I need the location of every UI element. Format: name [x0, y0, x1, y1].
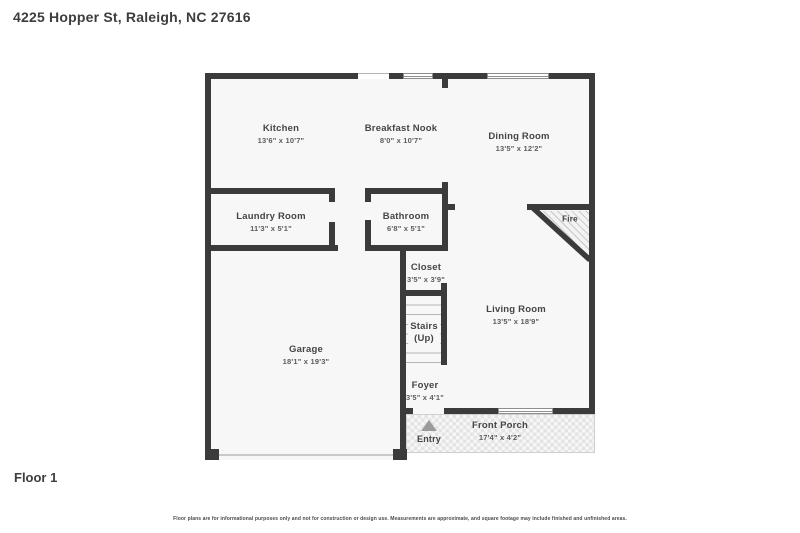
wall-laundry-right-upper [329, 194, 335, 202]
wall-bottom-3 [553, 408, 595, 414]
room-name: Foyer [406, 380, 444, 392]
room-label-laundry-room: Laundry Room 11'3" x 5'1" [236, 211, 305, 233]
wall-top-1 [205, 73, 358, 79]
wall-bottom-2 [444, 408, 498, 414]
room-label-garage: Garage 18'1" x 19'3" [283, 344, 330, 366]
room-name: Kitchen [258, 123, 305, 135]
wall-bathroom-left-upper [365, 194, 371, 202]
room-label-bathroom: Bathroom 6'8" x 5'1" [383, 211, 429, 233]
wall-breakfast-dining-stub [442, 79, 448, 88]
wall-bathroom-right [442, 182, 448, 251]
garage-door-line [219, 454, 393, 456]
room-name: Stairs [408, 321, 440, 333]
room-label-foyer: Foyer 3'5" x 4'1" [406, 380, 444, 402]
room-label-stairs: Stairs (Up) [408, 321, 440, 345]
entry-label: Entry [417, 434, 441, 444]
fireplace [527, 202, 595, 264]
room-name: Dining Room [488, 131, 549, 143]
room-dims: 3'5" x 4'1" [406, 393, 444, 402]
room-dims: 8'0" x 10'7" [365, 136, 438, 145]
wall-laundry-top [211, 188, 335, 194]
room-name: Laundry Room [236, 211, 305, 223]
room-dims: 17'4" x 4'2" [472, 433, 528, 442]
room-label-living-room: Living Room 13'5" x 18'9" [486, 304, 546, 326]
garage-corner-left [205, 449, 219, 460]
wall-garage-right [400, 251, 406, 460]
room-label-kitchen: Kitchen 13'6" x 10'7" [258, 123, 305, 145]
room-dims: 3'5" x 3'9" [407, 275, 445, 284]
page-title: 4225 Hopper St, Raleigh, NC 27616 [13, 9, 251, 25]
room-dims: 11'3" x 5'1" [236, 224, 305, 233]
room-dims: 13'6" x 10'7" [258, 136, 305, 145]
window-top-2 [487, 73, 549, 79]
wall-bathroom-top [365, 188, 448, 194]
stairs-direction: (Up) [408, 333, 440, 345]
window-bottom [498, 408, 553, 414]
room-dims: 13'5" x 12'2" [488, 144, 549, 153]
entry-arrow-icon [421, 420, 437, 431]
room-label-closet: Closet 3'5" x 3'9" [407, 262, 445, 284]
room-label-dining-room: Dining Room 13'5" x 12'2" [488, 131, 549, 153]
room-name: Front Porch [472, 420, 528, 432]
room-name: Garage [283, 344, 330, 356]
patio-door-opening [358, 73, 389, 79]
room-name: Living Room [486, 304, 546, 316]
wall-mid-right [368, 245, 448, 251]
wall-mid-left [205, 245, 338, 251]
room-name: Closet [407, 262, 445, 274]
fireplace-label: Fire [562, 215, 578, 224]
room-name: Bathroom [383, 211, 429, 223]
floor-number-label: Floor 1 [14, 470, 57, 485]
room-dims: 6'8" x 5'1" [383, 224, 429, 233]
room-label-breakfast-nook: Breakfast Nook 8'0" x 10'7" [365, 123, 438, 145]
wall-top-2 [389, 73, 403, 79]
room-dims: 13'5" x 18'9" [486, 317, 546, 326]
wall-bathroom-right-stub [448, 204, 455, 210]
room-dims: 18'1" x 19'3" [283, 357, 330, 366]
window-top-1 [403, 73, 433, 79]
disclaimer-text: Floor plans are for informational purpos… [0, 516, 800, 522]
room-label-front-porch: Front Porch 17'4" x 4'2" [472, 420, 528, 442]
wall-left [205, 73, 211, 460]
wall-closet-bottom [406, 290, 447, 296]
room-name: Breakfast Nook [365, 123, 438, 135]
